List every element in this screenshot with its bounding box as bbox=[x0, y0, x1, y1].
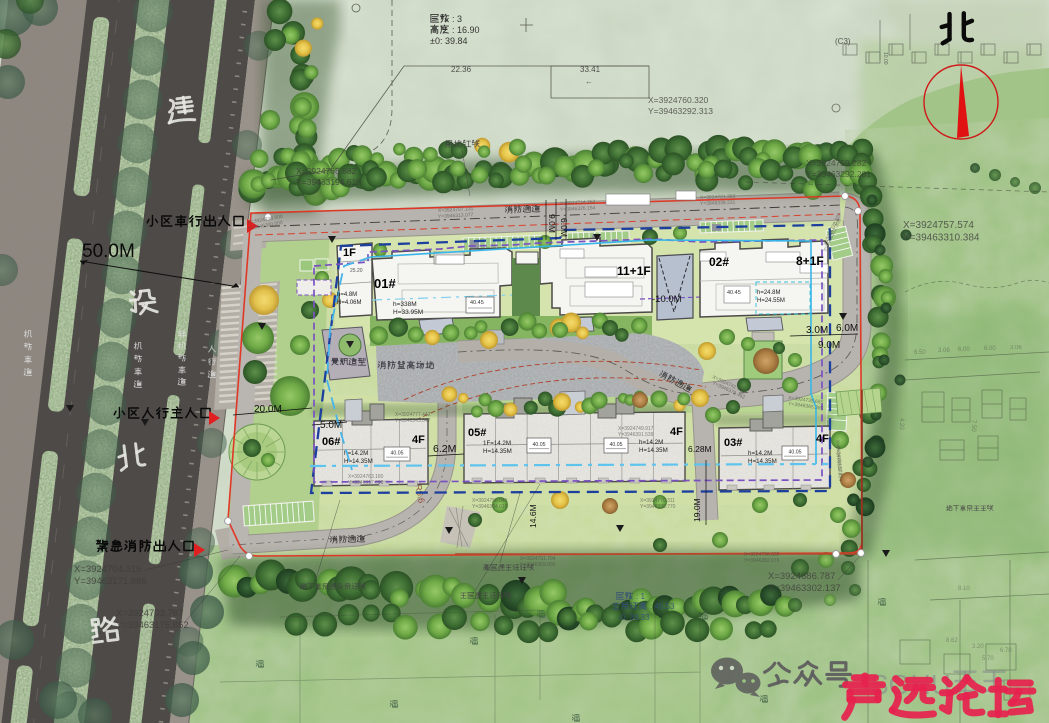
svg-text:-0, 39.33: -0, 39.33 bbox=[618, 613, 650, 622]
svg-text:06#: 06# bbox=[322, 436, 340, 448]
svg-text:H=14.35M: H=14.35M bbox=[639, 447, 668, 454]
svg-text:11+1F: 11+1F bbox=[617, 264, 651, 278]
svg-text:1F: 1F bbox=[343, 247, 356, 259]
svg-text:Y=39463292.313: Y=39463292.313 bbox=[648, 106, 713, 116]
svg-text:8+1F: 8+1F bbox=[796, 254, 824, 268]
svg-text:05#: 05# bbox=[468, 427, 486, 439]
svg-text:H=4.06M: H=4.06M bbox=[337, 300, 362, 306]
svg-text:X=3924768.882: X=3924768.882 bbox=[296, 166, 357, 176]
svg-text:33.41: 33.41 bbox=[580, 65, 601, 74]
svg-text:X=3924759.282: X=3924759.282 bbox=[806, 158, 867, 168]
svg-text:25.20: 25.20 bbox=[350, 268, 363, 274]
svg-text:X=3924757.574: X=3924757.574 bbox=[903, 220, 974, 231]
svg-text:8.10: 8.10 bbox=[958, 586, 970, 592]
svg-text:Y=39463171.886: Y=39463171.886 bbox=[74, 576, 147, 587]
svg-text:Y=3946343.847: Y=3946343.847 bbox=[395, 418, 431, 424]
svg-text:6.2M: 6.2M bbox=[433, 443, 456, 455]
svg-text:H=24.55M: H=24.55M bbox=[757, 298, 785, 304]
svg-text:Y=3946304.616: Y=3946304.616 bbox=[472, 504, 508, 510]
svg-text:Y=39463310.384: Y=39463310.384 bbox=[903, 233, 980, 244]
svg-text:±0: 39.84: ±0: 39.84 bbox=[430, 36, 467, 46]
svg-text:H=33.95M: H=33.95M bbox=[393, 309, 423, 316]
svg-text:01#: 01# bbox=[374, 276, 396, 291]
svg-text:-10.0M: -10.0M bbox=[652, 294, 682, 305]
svg-text:19.0M: 19.0M bbox=[692, 498, 702, 522]
svg-text:40.05: 40.05 bbox=[533, 442, 546, 448]
svg-text:9.0M: 9.0M bbox=[818, 340, 840, 351]
svg-text:40.05: 40.05 bbox=[789, 450, 802, 456]
svg-text:6.0M: 6.0M bbox=[836, 323, 858, 334]
svg-text:6.0M: 6.0M bbox=[559, 218, 569, 237]
svg-text:5.70: 5.70 bbox=[982, 656, 994, 662]
svg-text:1F=14.2M: 1F=14.2M bbox=[483, 440, 511, 447]
svg-text:Y=3946391.539: Y=3946391.539 bbox=[618, 432, 654, 438]
svg-text:40.45: 40.45 bbox=[470, 300, 484, 306]
svg-text:14.6M: 14.6M bbox=[528, 504, 538, 528]
svg-text:h=14.2M: h=14.2M bbox=[748, 450, 772, 457]
svg-text:4F: 4F bbox=[412, 434, 425, 446]
svg-text:4F: 4F bbox=[670, 426, 683, 438]
svg-text:8.62: 8.62 bbox=[946, 638, 958, 644]
svg-text:03#: 03# bbox=[724, 437, 742, 449]
svg-text:3.06: 3.06 bbox=[1010, 345, 1022, 351]
svg-text:40.05: 40.05 bbox=[391, 451, 404, 457]
svg-text:Y=39463175.852: Y=39463175.852 bbox=[116, 620, 189, 631]
svg-text:: 1: : 1 bbox=[636, 592, 645, 601]
svg-text:Y=3946339.231: Y=3946339.231 bbox=[700, 200, 736, 207]
svg-text:←: ← bbox=[585, 77, 593, 86]
svg-text:6.00: 6.00 bbox=[958, 347, 970, 353]
svg-text:X=3924760.320: X=3924760.320 bbox=[648, 95, 709, 105]
svg-text:X=3924703.787: X=3924703.787 bbox=[116, 608, 183, 619]
svg-text:: 45.53: : 45.53 bbox=[650, 602, 675, 611]
svg-text:20.0M: 20.0M bbox=[254, 404, 282, 415]
svg-text:H=14.35M: H=14.35M bbox=[483, 448, 512, 455]
svg-text:Y=39463194.610: Y=39463194.610 bbox=[296, 177, 361, 187]
svg-text:50.0M: 50.0M bbox=[82, 241, 135, 262]
svg-text:Y=3946382.079: Y=3946382.079 bbox=[744, 558, 780, 564]
svg-text:Y=3946330.770: Y=3946330.770 bbox=[640, 504, 676, 510]
svg-text:Y=39463292.201: Y=39463292.201 bbox=[806, 169, 871, 179]
svg-text:02#: 02# bbox=[709, 255, 729, 269]
svg-text:: 16.90: : 16.90 bbox=[452, 25, 480, 35]
svg-text:3.20: 3.20 bbox=[972, 644, 984, 650]
svg-text:3.06: 3.06 bbox=[938, 348, 950, 354]
svg-text:7.50: 7.50 bbox=[970, 420, 976, 432]
svg-text:Y=3946369.002: Y=3946369.002 bbox=[520, 562, 556, 568]
svg-text:40.05: 40.05 bbox=[610, 442, 623, 448]
svg-text:h=4.8M: h=4.8M bbox=[337, 292, 357, 298]
svg-text:40.45: 40.45 bbox=[727, 290, 741, 296]
svg-text:4.20: 4.20 bbox=[898, 418, 904, 430]
svg-text:Y=3946317.693: Y=3946317.693 bbox=[348, 480, 384, 486]
svg-text:X=3924704.316: X=3924704.316 bbox=[74, 564, 141, 575]
svg-text:6.50: 6.50 bbox=[914, 350, 926, 356]
svg-text:6.28M: 6.28M bbox=[688, 444, 712, 454]
svg-text:6.70: 6.70 bbox=[1000, 648, 1012, 654]
svg-text:4F: 4F bbox=[816, 433, 829, 445]
svg-text:22.36: 22.36 bbox=[451, 65, 472, 74]
svg-text:3.0M: 3.0M bbox=[806, 325, 828, 336]
svg-text:: 3: : 3 bbox=[452, 14, 462, 24]
svg-text:6.00: 6.00 bbox=[984, 346, 996, 352]
svg-text:h=24.8M: h=24.8M bbox=[757, 290, 781, 296]
svg-text:h=338M: h=338M bbox=[393, 301, 417, 308]
svg-text:X=3924686.787: X=3924686.787 bbox=[768, 571, 835, 582]
svg-text:h=14.2M: h=14.2M bbox=[639, 439, 663, 446]
svg-text:Y=39463302.137: Y=39463302.137 bbox=[768, 583, 841, 594]
svg-text:9.0M: 9.0M bbox=[547, 214, 557, 233]
svg-text:10.00: 10.00 bbox=[882, 52, 888, 65]
svg-text:5.0M: 5.0M bbox=[320, 420, 342, 431]
svg-text:(C3): (C3) bbox=[835, 37, 851, 46]
